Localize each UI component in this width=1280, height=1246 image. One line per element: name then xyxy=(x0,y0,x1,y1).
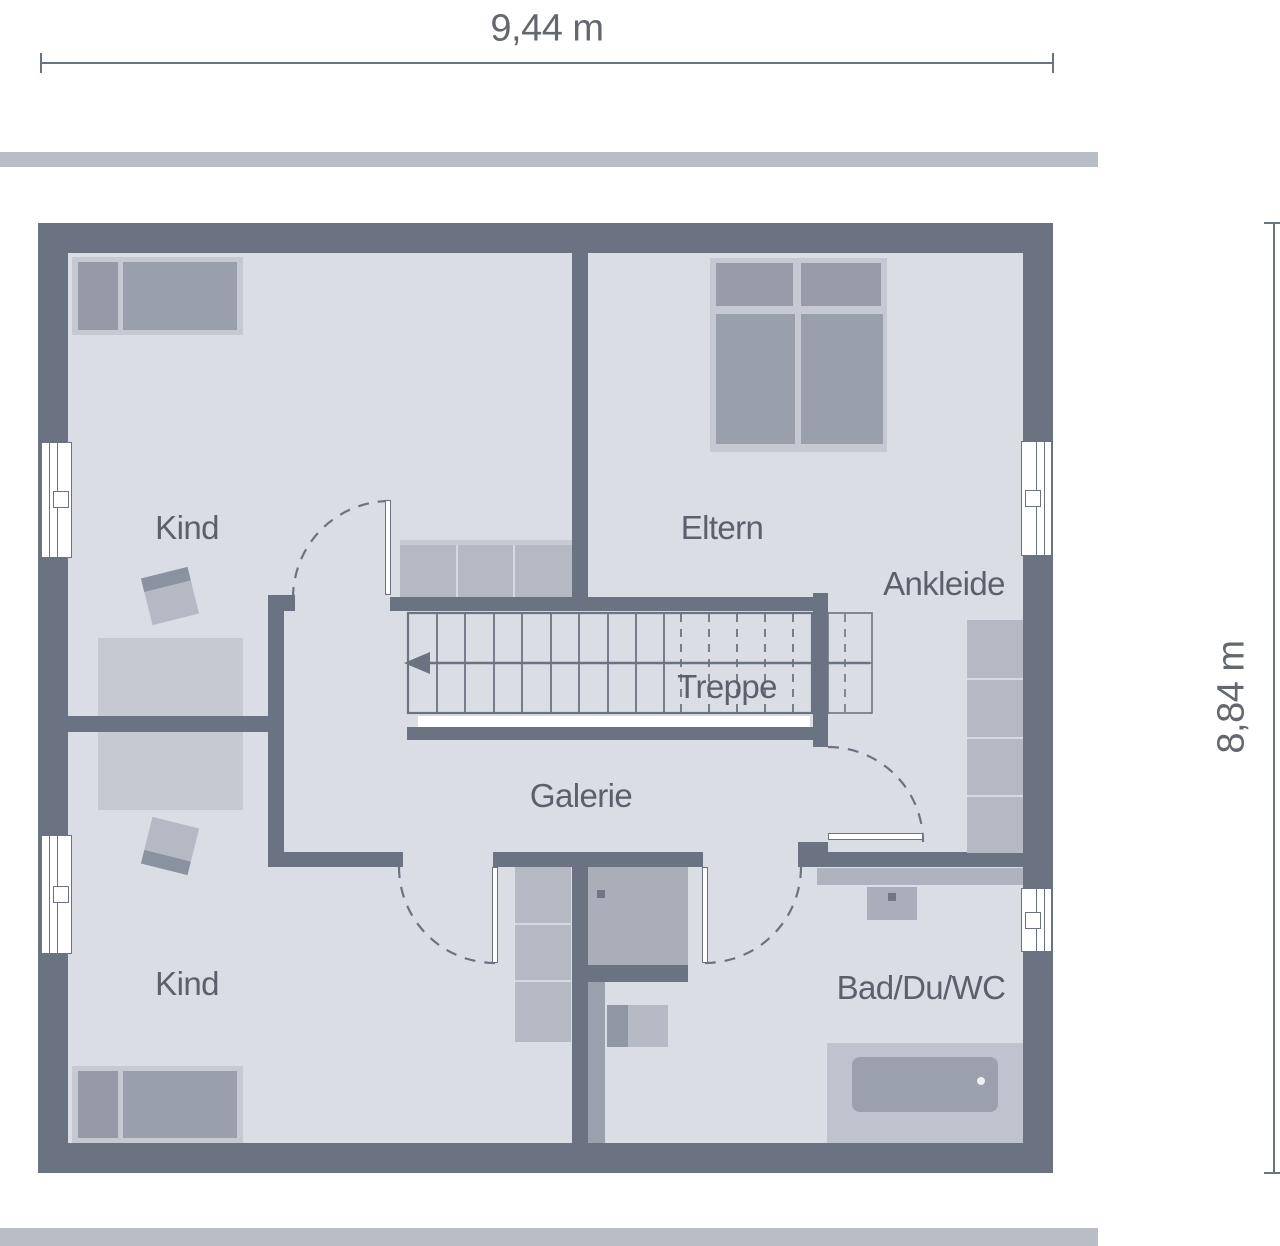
width-dimension-tick-left xyxy=(40,53,42,73)
door-bad xyxy=(702,867,708,963)
width-dimension-tick-right xyxy=(1052,53,1054,73)
room-label-bad: Bad/Du/WC xyxy=(837,969,1006,1007)
window-eltern xyxy=(1021,441,1052,556)
bed-eltern-mattress-left xyxy=(716,314,795,444)
roof-edge-bar-bottom xyxy=(0,1228,1098,1246)
height-dimension-tick-top xyxy=(1264,222,1280,224)
wall-kind-eltern xyxy=(572,253,588,597)
room-label-kind-bottom: Kind xyxy=(155,965,219,1003)
shower xyxy=(588,867,688,965)
room-label-kind-top: Kind xyxy=(155,509,219,547)
wardrobe-ankleide xyxy=(967,620,1023,853)
bed-eltern-pillow-left xyxy=(716,263,793,306)
knee-wall-bad xyxy=(588,982,605,1143)
wall-stair-top xyxy=(390,597,827,611)
roof-edge-bar-top xyxy=(0,152,1098,167)
bed-kind-bottom-pillow xyxy=(78,1071,118,1138)
floor-plan: 9,44 m 8,84 m xyxy=(0,0,1280,1246)
room-label-galerie: Galerie xyxy=(530,777,632,815)
bathtub-basin xyxy=(852,1057,998,1112)
room-label-eltern: Eltern xyxy=(681,509,764,547)
toilet-cistern xyxy=(607,1005,628,1047)
height-dimension-tick-bottom xyxy=(1264,1172,1280,1174)
gallery-railing xyxy=(418,716,810,727)
bed-eltern-pillow-right xyxy=(801,263,881,306)
wall-kind-divider xyxy=(68,716,284,732)
height-dimension-label: 8,84 m xyxy=(1211,640,1254,753)
wall-ankleide-corner xyxy=(798,842,828,867)
wall-galerie-bottom-left xyxy=(268,852,403,867)
width-dimension-line xyxy=(41,62,1053,64)
bathtub-tap-icon xyxy=(977,1077,985,1085)
closet-kind-bottom xyxy=(515,867,571,1042)
shower-drain-icon xyxy=(597,890,605,898)
bed-kind-top-pillow xyxy=(78,262,118,330)
door-ankleide xyxy=(828,833,923,840)
wall-stub-kind-door xyxy=(268,595,295,611)
wall-kind-bad xyxy=(572,867,588,1143)
toilet-bowl xyxy=(628,1005,668,1047)
sideboard-kind-top xyxy=(400,540,572,597)
wall-shower xyxy=(588,965,688,982)
window-bad xyxy=(1021,888,1052,952)
bath-counter xyxy=(817,868,1023,885)
wall-stair-bottom xyxy=(407,727,828,740)
bed-kind-bottom-mattress xyxy=(123,1071,237,1138)
width-dimension-label: 9,44 m xyxy=(490,8,603,51)
washbasin xyxy=(867,887,917,920)
wall-galerie-bottom-mid xyxy=(493,852,703,867)
room-label-treppe: Treppe xyxy=(677,668,777,706)
desk-kind-top xyxy=(98,638,243,716)
window-kind-top xyxy=(41,442,72,558)
room-label-ankleide: Ankleide xyxy=(883,565,1005,603)
door-kind-bottom xyxy=(492,867,498,963)
washbasin-tap-icon xyxy=(888,893,896,901)
bed-eltern-mattress-right xyxy=(801,314,883,444)
window-kind-bottom xyxy=(41,835,72,954)
desk-kind-bottom xyxy=(98,732,243,810)
wall-bad-top xyxy=(828,852,1023,867)
door-kind-top xyxy=(385,500,391,595)
bed-kind-top-mattress xyxy=(123,262,237,330)
height-dimension-line xyxy=(1273,223,1275,1173)
wall-stair-right xyxy=(813,593,828,747)
